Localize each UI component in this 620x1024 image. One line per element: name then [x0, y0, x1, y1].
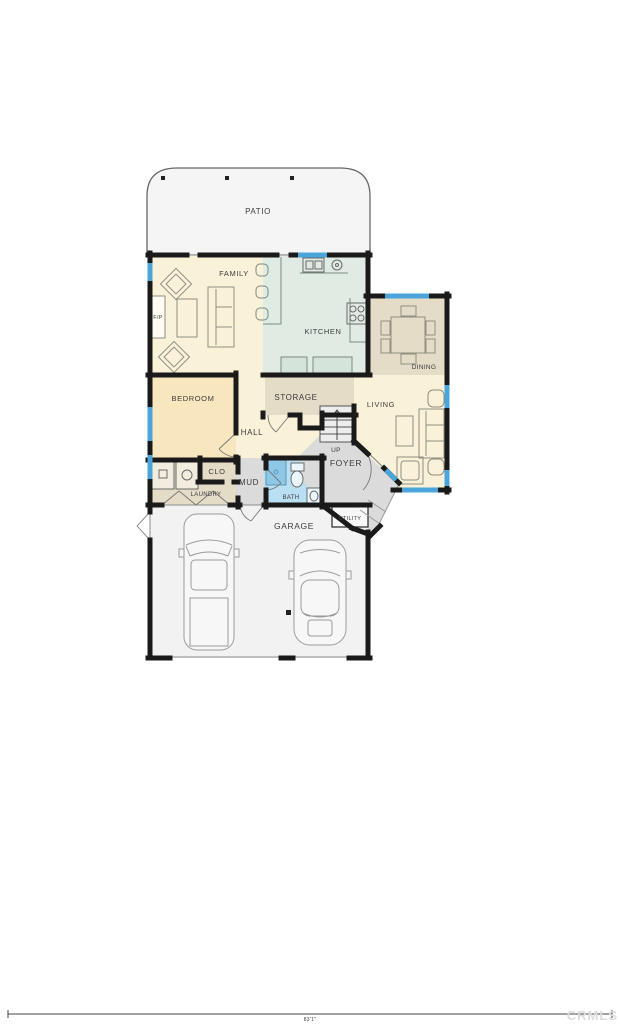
utility-label: UTILITY: [339, 516, 362, 522]
watermark: CRMLS: [567, 1008, 618, 1023]
garage-side-door-swing: [137, 512, 150, 540]
kitchen-island: [313, 357, 352, 374]
up-label: UP: [331, 447, 341, 454]
patio-post-icon: [225, 176, 229, 180]
foyer-label: FOYER: [330, 458, 362, 468]
dryer-icon: [176, 461, 198, 489]
family-label: FAMILY: [219, 269, 249, 278]
kitchen-label: KITCHEN: [304, 327, 341, 336]
kitchen-island: [281, 357, 307, 374]
washer-icon: [152, 461, 174, 489]
staircase: [320, 406, 354, 442]
bedroom-label: BEDROOM: [172, 394, 215, 403]
patio-label: PATIO: [245, 207, 271, 216]
truck-icon: [179, 514, 239, 650]
laundry-label: LAUNDRY: [191, 492, 222, 498]
closet-label: CLO: [208, 467, 225, 476]
garage-label: GARAGE: [274, 521, 314, 531]
fireplace-label: F/P: [153, 315, 162, 321]
floor-plan-canvas: PATIO FAMILY F/P KITCHEN DINING BEDROOM …: [0, 0, 620, 1024]
dining-label: DINING: [412, 364, 437, 371]
mud-label: MUD: [239, 478, 259, 487]
scale-length-label: 83'1": [304, 1017, 317, 1023]
toilet-icon: [291, 463, 304, 487]
patio-post-icon: [161, 176, 165, 180]
bath-label: BATH: [283, 495, 300, 501]
storage-label: STORAGE: [274, 393, 317, 402]
room-bedroom: [150, 375, 236, 460]
floor-plan-page: PATIO FAMILY F/P KITCHEN DINING BEDROOM …: [0, 0, 620, 1024]
living-label: LIVING: [367, 400, 395, 409]
hall-label: HALL: [241, 428, 263, 437]
car-icon: [289, 540, 351, 645]
garage-post-icon: [286, 610, 291, 615]
shower-icon: [266, 460, 286, 485]
patio-post-icon: [290, 176, 294, 180]
